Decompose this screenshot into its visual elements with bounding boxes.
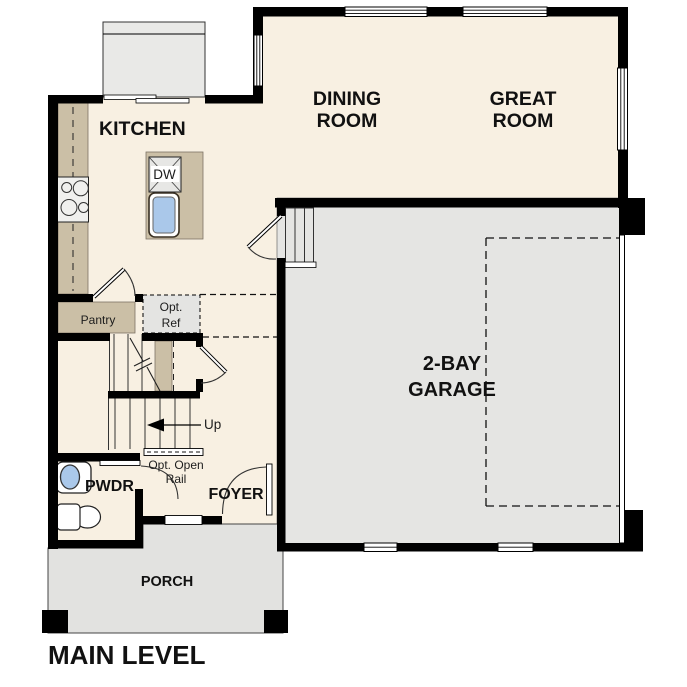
- garage-side-opening: [620, 235, 625, 543]
- opt-open-rail-label-line1: Opt. Open: [148, 458, 203, 472]
- cooktop-icon: [57, 177, 89, 222]
- great-dining-floor: [253, 7, 628, 208]
- wall: [48, 333, 110, 341]
- great-room-label-line1: GREAT: [490, 88, 557, 110]
- stair-center-wall: [155, 341, 172, 391]
- kitchen-label: KITCHEN: [99, 118, 186, 140]
- kitchen-sink-icon: [149, 193, 179, 237]
- opt-ref-label-line2: Ref: [162, 316, 181, 330]
- wall: [277, 543, 643, 552]
- plan-title: MAIN LEVEL: [48, 640, 206, 670]
- wall-corner-block: [623, 510, 643, 552]
- wall: [48, 95, 58, 549]
- foyer-label: FOYER: [208, 486, 264, 503]
- wall: [135, 294, 143, 302]
- wall: [547, 7, 628, 17]
- wall-corner-block: [619, 198, 645, 235]
- wall: [48, 95, 103, 104]
- toilet-icon: [57, 504, 101, 530]
- floor-plan-main-level: KITCHEN DINING ROOM GREAT ROOM 2-BAY GAR…: [0, 0, 687, 687]
- wall: [427, 7, 463, 17]
- floor-plan-drawing: KITCHEN DINING ROOM GREAT ROOM 2-BAY GAR…: [0, 0, 687, 687]
- dining-room-label-line1: DINING: [313, 88, 381, 110]
- garage-label-line2: GARAGE: [408, 379, 496, 401]
- bay-window-bump-out: [103, 22, 205, 97]
- wall: [196, 379, 203, 392]
- dining-room-label-line2: ROOM: [317, 110, 378, 132]
- window: [364, 543, 397, 552]
- up-label: Up: [204, 417, 221, 432]
- wall: [277, 258, 286, 551]
- wall: [108, 391, 200, 399]
- great-room-label-line2: ROOM: [493, 110, 554, 132]
- opt-open-rail-label-line2: Rail: [166, 472, 187, 486]
- dishwasher-label: DW: [153, 167, 176, 182]
- powder-room-label: PWDR: [85, 478, 134, 495]
- wall: [196, 333, 203, 347]
- wall: [275, 198, 628, 208]
- window: [254, 35, 263, 86]
- wall: [135, 489, 143, 548]
- wall: [277, 198, 286, 216]
- window: [345, 7, 427, 17]
- porch-post-left: [42, 610, 68, 633]
- opt-ref-label-line1: Opt.: [160, 300, 183, 314]
- pantry-label: Pantry: [81, 313, 116, 327]
- window: [463, 7, 547, 17]
- front-door-step: [165, 516, 202, 525]
- wall: [142, 333, 200, 341]
- porch-post-right: [264, 610, 288, 633]
- window: [618, 68, 628, 150]
- wall: [48, 540, 143, 549]
- wall: [48, 294, 93, 302]
- garage-label-line1: 2-BAY: [423, 353, 482, 375]
- wall: [253, 7, 345, 17]
- optional-open-rail: [144, 449, 203, 456]
- wall: [618, 7, 628, 68]
- porch-label: PORCH: [141, 574, 193, 590]
- window: [498, 543, 533, 552]
